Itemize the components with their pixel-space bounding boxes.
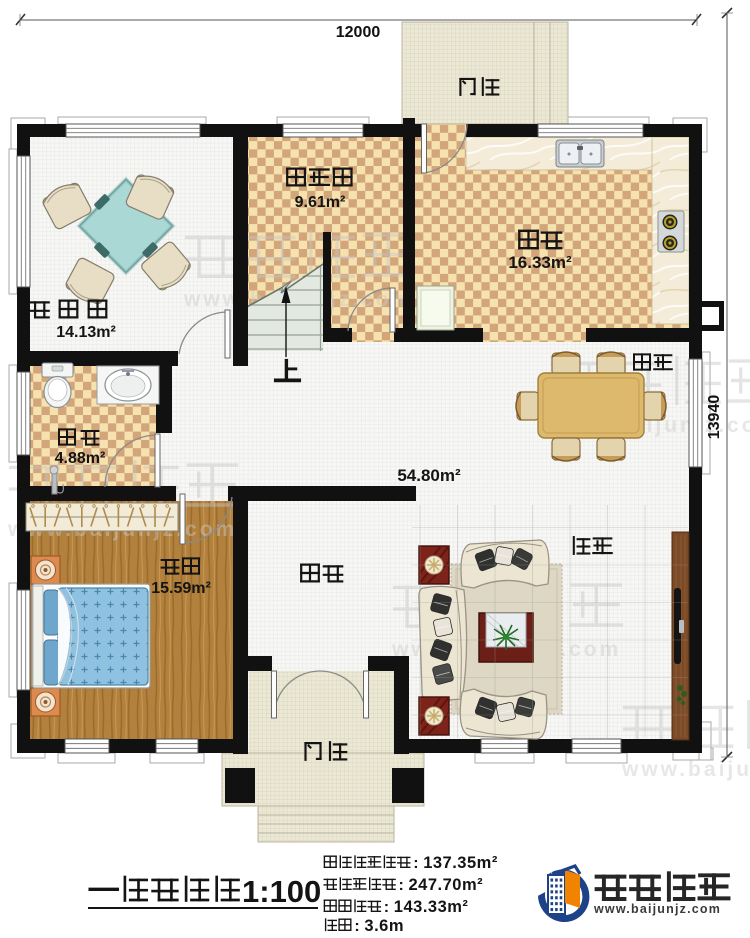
svg-text:54.80m²: 54.80m²	[397, 466, 461, 485]
svg-text:www.baijunjz.com: www.baijunjz.com	[621, 758, 750, 781]
svg-text:15.59m²: 15.59m²	[151, 580, 211, 597]
svg-text:12000: 12000	[336, 24, 381, 41]
svg-text::: :	[413, 855, 418, 872]
svg-text:9.61m²: 9.61m²	[295, 194, 346, 211]
svg-text:16.33m²: 16.33m²	[508, 253, 572, 272]
svg-text:4.88m²: 4.88m²	[55, 450, 106, 467]
svg-text:1:100: 1:100	[242, 874, 321, 909]
svg-text:3.6m: 3.6m	[364, 917, 404, 933]
svg-text:143.33m²: 143.33m²	[394, 898, 469, 916]
svg-text:137.35m²: 137.35m²	[423, 854, 498, 872]
svg-text::: :	[354, 918, 359, 933]
svg-text:14.13m²: 14.13m²	[56, 324, 116, 341]
svg-text:13940: 13940	[706, 395, 723, 440]
svg-text::: :	[384, 899, 389, 916]
svg-text:www.baijunjz.com: www.baijunjz.com	[593, 902, 721, 916]
svg-text::: :	[399, 877, 404, 894]
svg-text:247.70m²: 247.70m²	[409, 876, 484, 894]
